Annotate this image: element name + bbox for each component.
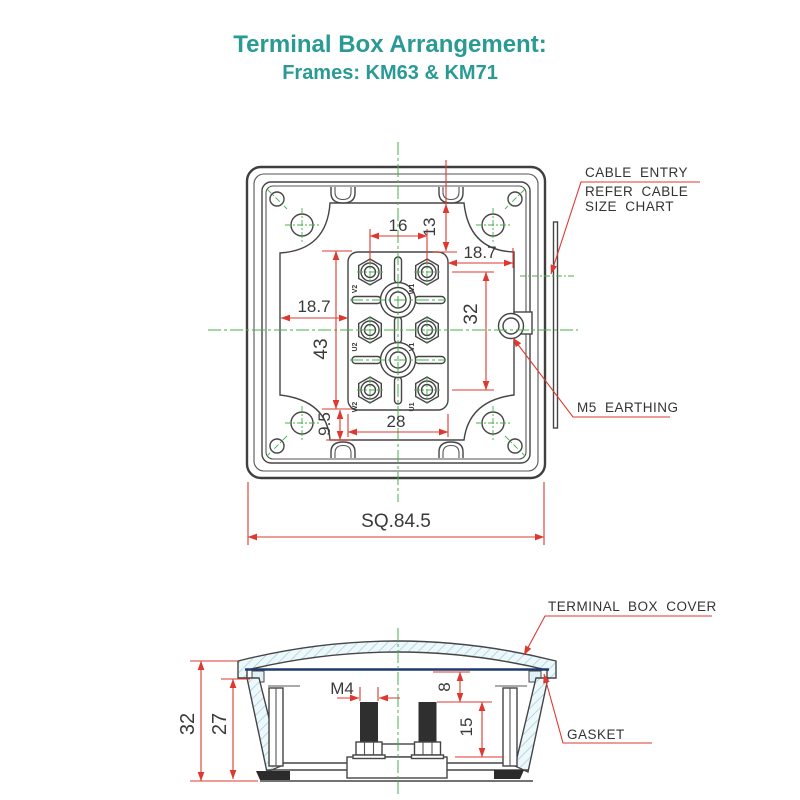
dim-8: 8 [435, 682, 454, 691]
page-title: Terminal Box Arrangement: [233, 31, 546, 58]
foot-left [256, 771, 290, 780]
terminal-label-v1: V1 [409, 343, 416, 352]
dim-m4: M4 [330, 679, 354, 698]
dim-section-32: 32 [177, 713, 199, 735]
cable-entry-edge [554, 222, 558, 428]
dim-43: 43 [311, 338, 332, 359]
dim-18-7-right: 18.7 [463, 243, 496, 262]
terminal-label-v2: V2 [352, 285, 359, 294]
cable-entry-label-line3: SIZE CHART [585, 199, 674, 214]
dim-9-5: 9.5 [315, 412, 334, 436]
cover-label: TERMINAL BOX COVER [548, 599, 717, 614]
terminal-label-u2: U2 [352, 342, 359, 351]
cable-entry-label-line1: CABLE ENTRY [585, 165, 688, 180]
earthing-label: M5 EARTHING [577, 400, 679, 415]
dim-sq84-5: SQ.84.5 [361, 511, 431, 532]
dim-13: 13 [420, 218, 439, 237]
terminal-base-section [347, 757, 447, 778]
terminal-box-drawing: Terminal Box Arrangement: Frames: KM63 &… [0, 0, 800, 800]
earthing-boss [499, 312, 533, 339]
drawing-page: Terminal Box Arrangement: Frames: KM63 &… [0, 0, 800, 800]
terminal-label-u1: U1 [409, 402, 416, 411]
dim-15: 15 [457, 718, 476, 737]
page-subtitle: Frames: KM63 & KM71 [282, 62, 498, 84]
gasket-label: GASKET [567, 727, 625, 742]
dim-16: 16 [389, 216, 408, 235]
terminal-label-w1: W1 [409, 284, 416, 295]
dim-32: 32 [461, 303, 482, 324]
terminal-label-w2: W2 [352, 402, 359, 413]
dim-18-7-left: 18.7 [297, 297, 330, 316]
dim-section-27: 27 [209, 713, 231, 735]
dim-28: 28 [387, 412, 406, 431]
foot-right [494, 770, 524, 779]
cable-entry-label-line2: REFER CABLE [585, 184, 688, 199]
